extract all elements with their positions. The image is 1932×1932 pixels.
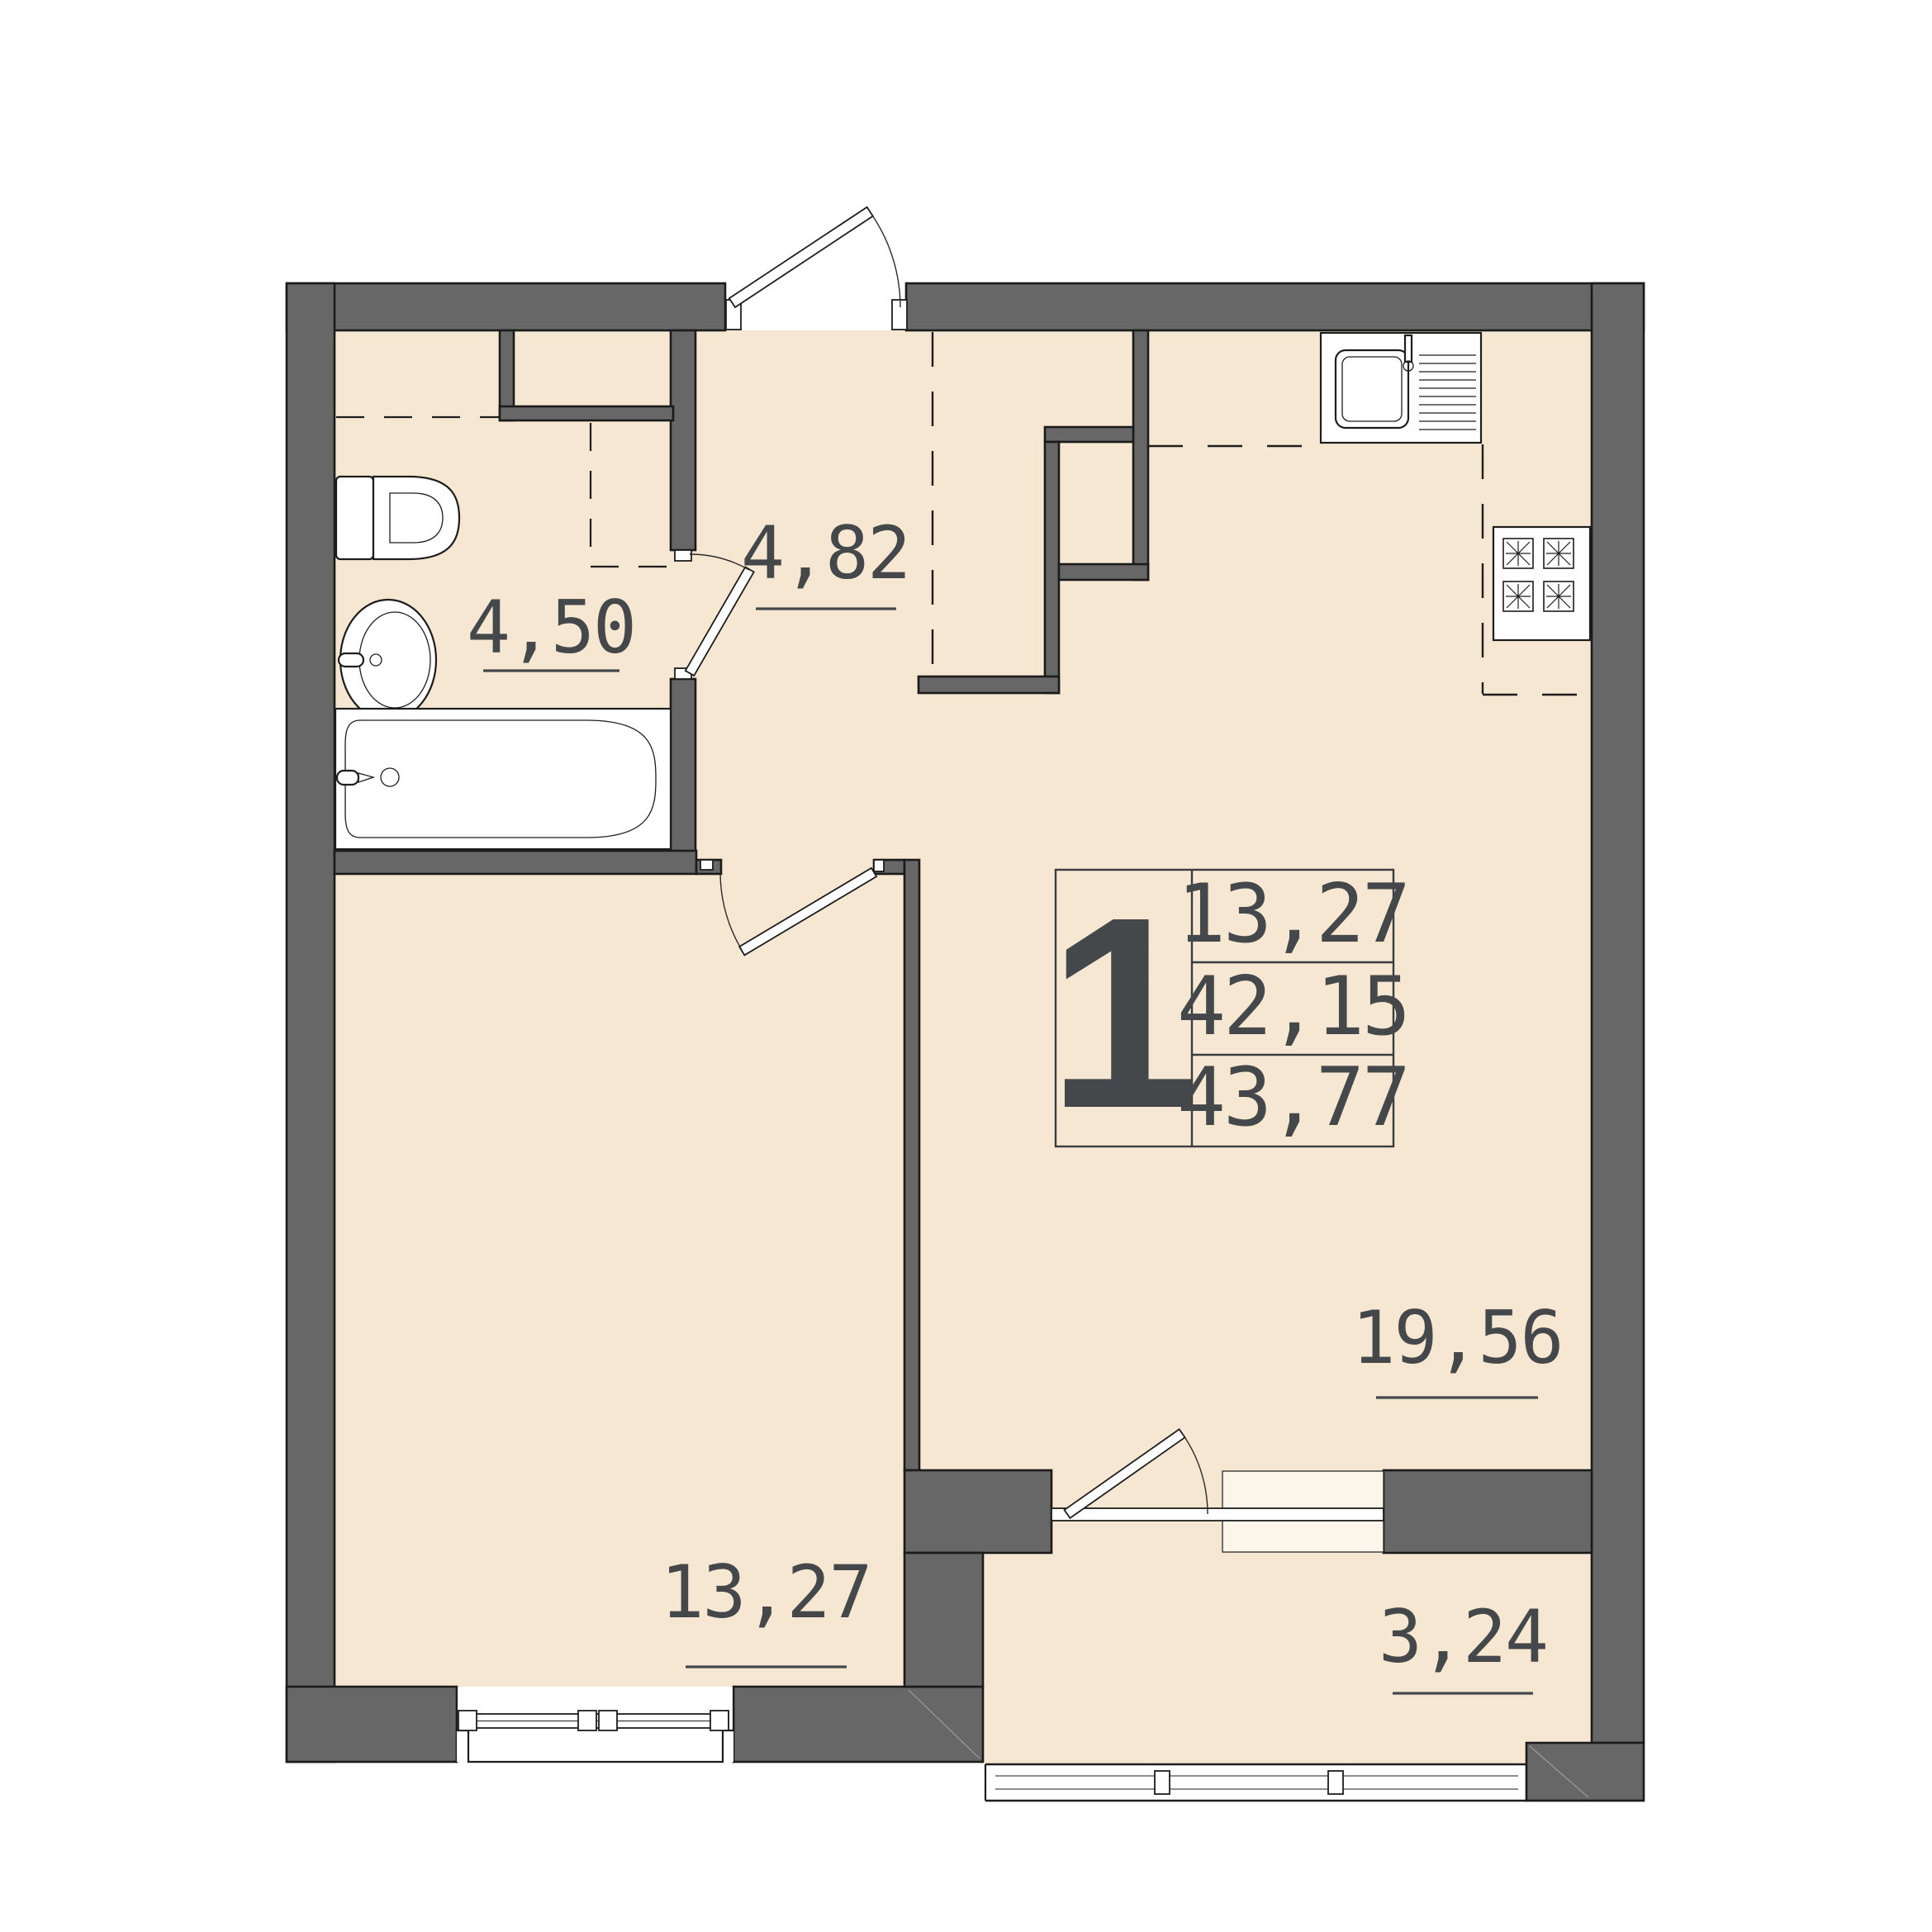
bathroom-door-jamb-top <box>675 550 691 561</box>
wall-balcony-corner <box>1526 1743 1644 1801</box>
room-label-living-kitchen: 19,56 <box>1352 1295 1563 1380</box>
wall-top-right <box>906 283 1644 330</box>
bedroom-window <box>457 1687 733 1762</box>
entrance-door-leaf <box>729 207 873 307</box>
room-label-bathroom: 4,50 <box>467 585 635 670</box>
wall-bottom-bedroom-left <box>287 1687 457 1762</box>
room-label-bedroom: 13,27 <box>661 1550 871 1635</box>
bathtub-icon <box>335 709 671 849</box>
wall-corner-block <box>904 1553 983 1687</box>
entrance-door <box>726 207 907 330</box>
info-living-area: 13,27 <box>1177 867 1408 961</box>
wall-hallway-stub <box>919 676 1059 693</box>
kitchen-sink-icon <box>1321 333 1481 443</box>
entrance-door-jamb-right <box>892 300 907 330</box>
shaft-wall-top <box>1045 427 1133 442</box>
washbasin-icon <box>339 600 436 720</box>
room-label-balcony: 3,24 <box>1379 1594 1547 1679</box>
wall-bathroom-bedroom <box>335 851 696 874</box>
floor-plan: 1 13,27 42,15 43,77 4,50 4,82 13,27 19,5… <box>0 0 1932 1932</box>
bedroom-door-jamb-left <box>700 860 713 870</box>
wall-balcony-divider-right <box>1384 1470 1592 1553</box>
balcony-threshold-frame <box>1051 1508 1384 1521</box>
info-apartment-area: 42,15 <box>1177 960 1408 1054</box>
bedroom-door-jamb-right <box>874 860 884 871</box>
wall-hallway-living <box>1133 330 1148 580</box>
wall-balcony-divider-left <box>904 1470 1051 1553</box>
wall-bottom-bedroom-right <box>733 1687 983 1762</box>
wall-bathroom-right-lower <box>671 679 695 861</box>
room-label-hallway: 4,82 <box>741 510 909 596</box>
balcony-window <box>985 1764 1526 1801</box>
entrance-door-swing <box>873 216 900 308</box>
wall-top-left <box>287 283 725 330</box>
niche-wall-bottom <box>500 406 673 420</box>
wall-bathroom-right-upper <box>671 330 695 550</box>
wall-bedroom-living <box>904 860 919 1470</box>
shaft-wall-left <box>1045 442 1059 693</box>
wall-right <box>1592 283 1644 1743</box>
info-total-area: 43,77 <box>1177 1051 1408 1145</box>
shaft-wall-bottom <box>1059 564 1148 580</box>
info-box: 1 13,27 42,15 43,77 <box>1047 860 1408 1165</box>
floor-plan-page: 1 13,27 42,15 43,77 4,50 4,82 13,27 19,5… <box>0 0 1932 1932</box>
toilet-icon <box>336 477 459 559</box>
wall-left <box>287 283 335 1762</box>
stove-icon <box>1493 527 1590 640</box>
